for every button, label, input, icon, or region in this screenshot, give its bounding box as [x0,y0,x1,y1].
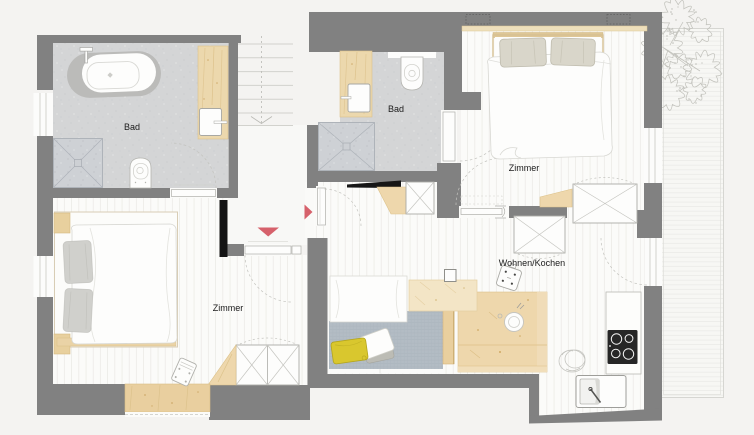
svg-text:Wohnen/Kochen: Wohnen/Kochen [499,258,565,268]
svg-text:Bad: Bad [124,122,140,132]
svg-text:Zimmer: Zimmer [509,163,540,173]
svg-text:Bad: Bad [388,104,404,114]
svg-text:Zimmer: Zimmer [213,303,244,313]
